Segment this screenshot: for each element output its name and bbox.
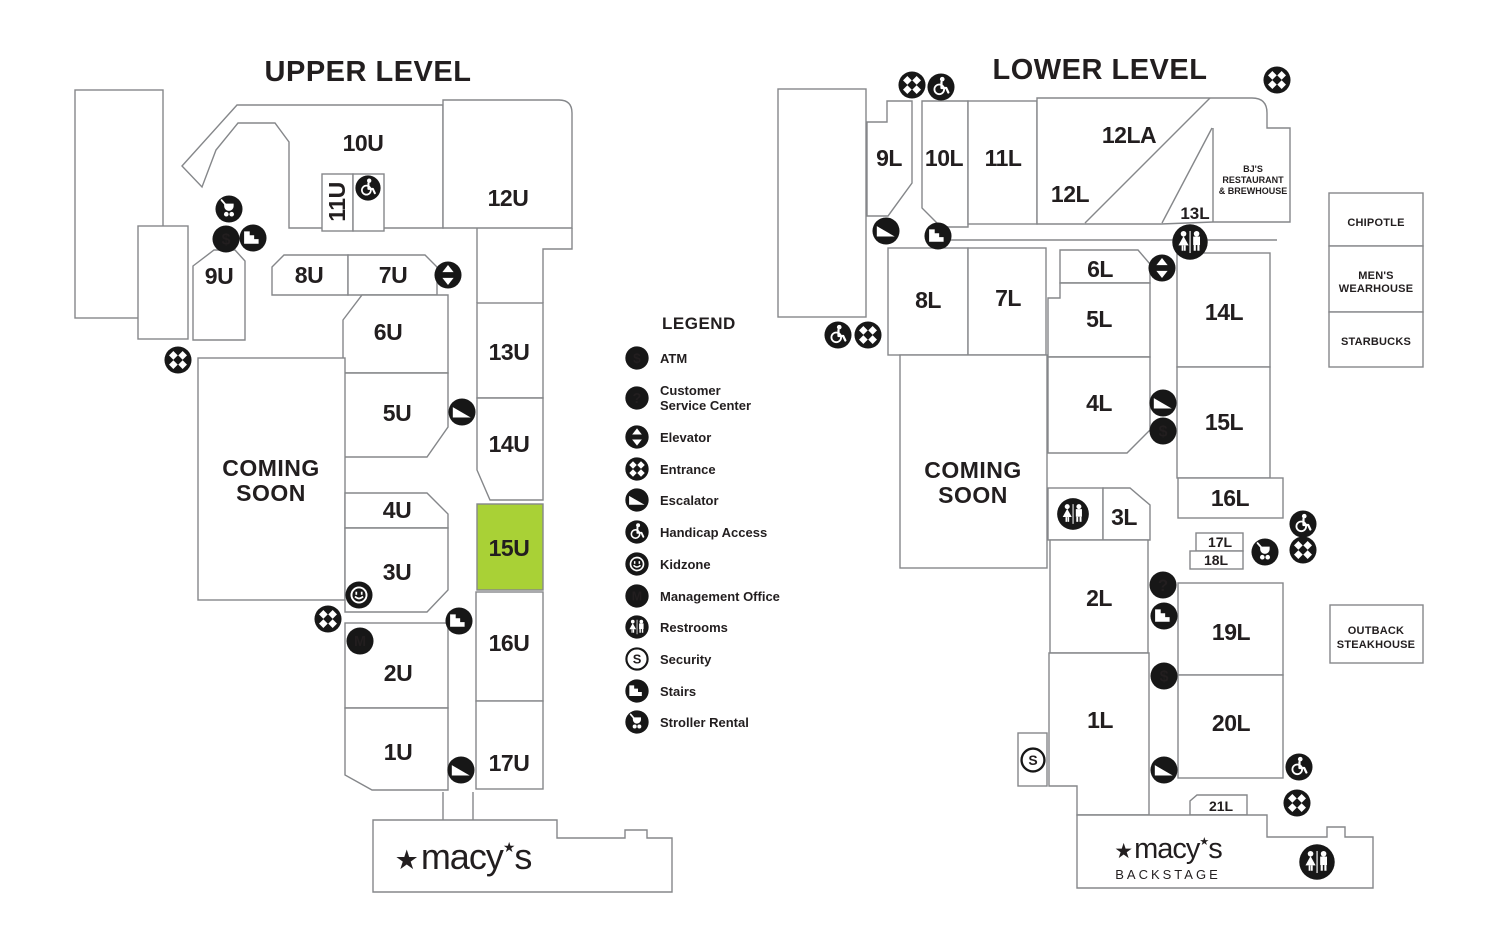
tenant-outback-label: STEAKHOUSE: [1337, 639, 1415, 651]
corridor-line: [443, 792, 473, 820]
atm-icon: [1150, 662, 1177, 689]
unit-1L-label: 1L: [1087, 707, 1113, 733]
upper-level-title: UPPER LEVEL: [265, 56, 472, 88]
security-icon: [1022, 749, 1045, 772]
tenant-outback-label: OUTBACK: [1348, 625, 1404, 637]
legend-label: Stairs: [660, 684, 696, 699]
unit-11U-label: 11U: [324, 182, 350, 221]
legend-label: Escalator: [660, 493, 719, 508]
lower-level-title: LOWER LEVEL: [993, 54, 1208, 86]
escalator-icon: [448, 398, 475, 425]
handicap-icon: [1285, 753, 1312, 780]
entrance-icon: [898, 71, 925, 98]
unit-11L-label: 11L: [985, 145, 1022, 171]
building-outline: [778, 89, 866, 317]
unit-7L-label: 7L: [995, 285, 1021, 311]
handicap-icon: [824, 321, 851, 348]
lower-level: LOWER LEVEL 9L 10L 11L 12L 12LA 13L BJ'S…: [778, 54, 1423, 888]
kidzone-icon: [345, 581, 372, 608]
unit-14U-label: 14U: [489, 431, 530, 457]
stroller-icon: [625, 710, 648, 733]
tenant-chipotle-label: CHIPOTLE: [1347, 217, 1404, 229]
unit-6U-label: 6U: [374, 319, 402, 345]
customer-service-icon: [625, 386, 648, 409]
unit-21L-label: 21L: [1209, 798, 1234, 814]
entrance-icon: [1283, 789, 1310, 816]
tenant-starbucks-label: STARBUCKS: [1341, 336, 1411, 348]
unit-9U-label: 9U: [205, 263, 233, 289]
legend-label: Entrance: [660, 462, 716, 477]
unit-16L-label: 16L: [1211, 485, 1250, 511]
handicap-icon: [1289, 510, 1316, 537]
elevator-icon: [434, 261, 461, 288]
atm-icon: [1149, 417, 1176, 444]
entrance-icon: [854, 321, 881, 348]
restrooms-icon: [1299, 844, 1334, 879]
coming-soon-lower-label: SOON: [938, 482, 1008, 508]
legend-label: Handicap Access: [660, 525, 767, 540]
entrance-icon: [164, 346, 191, 373]
bjs-restaurant-label: BJ'S: [1243, 164, 1263, 174]
unit-2L-label: 2L: [1086, 585, 1112, 611]
legend-label: Security: [660, 652, 712, 667]
management-office-icon: [625, 584, 648, 607]
macys-backstage-sub-label: BACKSTAGE: [1115, 867, 1221, 882]
entrance-icon: [625, 457, 648, 480]
unit-17L-label: 17L: [1208, 534, 1233, 550]
escalator-icon: [1149, 389, 1176, 416]
coming-soon-upper-label: SOON: [236, 480, 306, 506]
unit-10U-label: 10U: [343, 130, 384, 156]
unit-8L-label: 8L: [915, 287, 941, 313]
kidzone-icon: [625, 552, 648, 575]
escalator-icon: [447, 756, 474, 783]
entrance-icon: [314, 605, 341, 632]
stairs-icon: [239, 224, 266, 251]
security-icon: [626, 648, 647, 669]
bjs-restaurant-label: RESTAURANT: [1222, 175, 1284, 185]
legend-label: Management Office: [660, 589, 780, 604]
atm-icon: [625, 346, 648, 369]
legend-label: Service Center: [660, 398, 751, 413]
unit-18L-label: 18L: [1204, 552, 1229, 568]
unit-5U-label: 5U: [383, 400, 411, 426]
unit-16U-label: 16U: [489, 630, 530, 656]
mall-directory-map: $ ? M S: [0, 0, 1499, 945]
stairs-icon: [924, 222, 951, 249]
corridor-line: [543, 228, 572, 303]
elevator-icon: [625, 425, 648, 448]
unit-9L-label: 9L: [876, 145, 902, 171]
upper-level: UPPER LEVEL 10U 11U 12U 9U 8U 7U 6U 5U C…: [75, 56, 672, 892]
escalator-icon: [625, 488, 648, 511]
unit-3L-label: 3L: [1111, 504, 1137, 530]
unit-6L-label: 6L: [1087, 256, 1113, 282]
unit-8U-label: 8U: [295, 262, 323, 288]
legend-label: Restrooms: [660, 620, 728, 635]
unit-3U-label: 3U: [383, 559, 411, 585]
unit-13U-label: 13U: [489, 339, 530, 365]
handicap-icon: [355, 175, 380, 200]
customer-service-icon: [1149, 571, 1176, 598]
legend-label: Stroller Rental: [660, 715, 749, 730]
unit-12U-label: 12U: [488, 185, 529, 211]
unit-2U-label: 2U: [384, 660, 412, 686]
unit-17U-label: 17U: [489, 750, 530, 776]
coming-soon-lower-label: COMING: [924, 457, 1022, 483]
coming-soon-upper-label: COMING: [222, 455, 320, 481]
unit-4L-label: 4L: [1086, 390, 1112, 416]
legend-label: ATM: [660, 351, 687, 366]
handicap-icon: [927, 73, 954, 100]
stairs-icon: [625, 679, 648, 702]
map-canvas: $ ? M S: [0, 0, 1499, 945]
legend: LEGEND ATM Customer Service Center Eleva…: [625, 314, 780, 734]
unit-10L-label: 10L: [925, 145, 964, 171]
unit-20L-label: 20L: [1212, 710, 1251, 736]
unit-12L-label: 12L: [1051, 181, 1090, 207]
elevator-icon: [1148, 254, 1175, 281]
escalator-icon: [872, 217, 899, 244]
bjs-restaurant-label: & BREWHOUSE: [1219, 186, 1288, 196]
unit-19L-label: 19L: [1212, 619, 1251, 645]
tenant-mens-wearhouse-label: WEARHOUSE: [1339, 283, 1414, 295]
unit-15U-label: 15U: [489, 535, 530, 561]
building-outline: [138, 226, 188, 339]
entrance-icon: [1263, 66, 1290, 93]
unit-13L-label: 13L: [1180, 204, 1209, 223]
management-office-icon: [346, 627, 373, 654]
unit-1U-label: 1U: [384, 739, 412, 765]
unit-12LA-label: 12LA: [1102, 122, 1156, 148]
legend-label: Elevator: [660, 430, 711, 445]
unit-15L-label: 15L: [1205, 409, 1244, 435]
stairs-icon: [1150, 602, 1177, 629]
entrance-icon: [1289, 536, 1316, 563]
restrooms-icon: [1057, 498, 1089, 530]
legend-label: Customer: [660, 383, 721, 398]
unit-14L-label: 14L: [1205, 299, 1244, 325]
legend-label: Kidzone: [660, 557, 711, 572]
unit-4U-label: 4U: [383, 497, 411, 523]
restrooms-icon: [1172, 224, 1207, 259]
legend-title: LEGEND: [662, 314, 736, 333]
escalator-icon: [1150, 756, 1177, 783]
tenant-mens-wearhouse-label: MEN'S: [1358, 270, 1393, 282]
stroller-icon: [215, 195, 242, 222]
restrooms-icon: [625, 615, 648, 638]
unit-1L-shape[interactable]: [1049, 653, 1149, 815]
atm-icon: [212, 225, 239, 252]
unit-5L-label: 5L: [1086, 306, 1112, 332]
handicap-icon: [625, 520, 648, 543]
stairs-icon: [445, 607, 472, 634]
unit-7U-label: 7U: [379, 262, 407, 288]
stroller-icon: [1251, 538, 1278, 565]
